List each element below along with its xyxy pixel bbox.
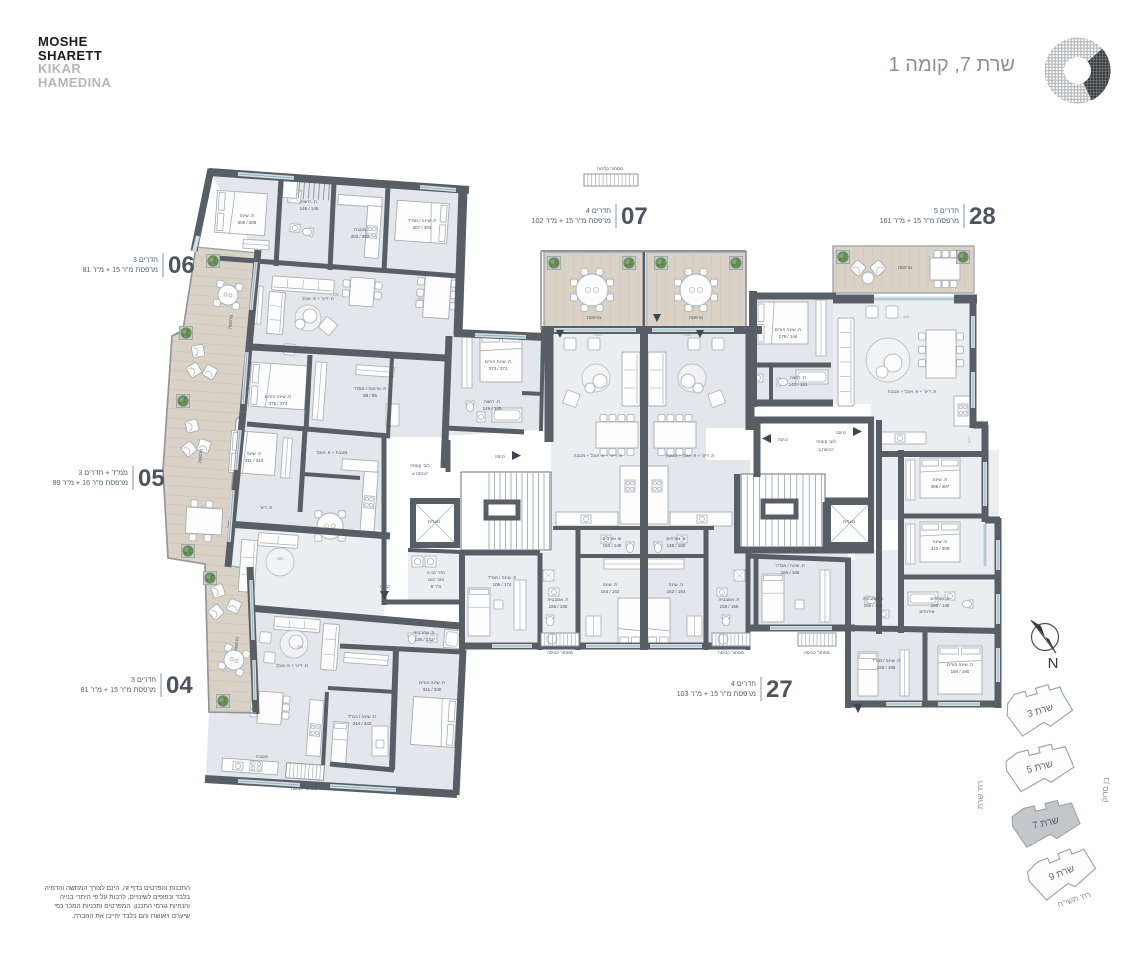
- svg-text:ת. שינה: ת. שינה: [933, 539, 948, 544]
- svg-text:ת. שינה / במ"ד: ת. שינה / במ"ד: [348, 714, 376, 719]
- svg-text:רח' שרת: רח' שרת: [976, 781, 985, 809]
- svg-text:רח' תשי"ח: רח' תשי"ח: [1056, 890, 1092, 909]
- svg-text:כניסה: כניסה: [836, 430, 846, 435]
- svg-text:כניסה: כניסה: [778, 437, 788, 442]
- svg-text:ת. שינה: ת. שינה: [669, 582, 684, 587]
- svg-text:81 ‎מ"ר ‎+ ‎15 ‎מ"ר ‎מרפסת: 81 ‎מ"ר ‎+ ‎15 ‎מ"ר ‎מרפסת: [83, 265, 158, 274]
- svg-text:ת. אמבטיה: ת. אמבטיה: [862, 596, 883, 601]
- svg-text:- 444 -: - 444 -: [901, 315, 913, 319]
- svg-text:מסתור כביסה: מסתור כביסה: [804, 650, 830, 655]
- svg-text:27: 27: [766, 676, 793, 703]
- svg-text:4 ‎חדרים: 4 ‎חדרים: [586, 206, 611, 215]
- svg-text:- 420 -: - 420 -: [294, 645, 306, 650]
- svg-text:- 345 -: - 345 -: [414, 297, 426, 302]
- svg-text:06: 06: [168, 252, 195, 279]
- svg-text:ת. דיור + פ. אוכל + מטבח: ת. דיור + פ. אוכל + מטבח: [666, 453, 715, 458]
- svg-text:ש. אורחים: ש. אורחים: [602, 536, 622, 541]
- svg-text:מעלית: מעלית: [428, 519, 440, 524]
- svg-text:ת. דיור + פ. אוכל + מטבח: ת. דיור + פ. אוכל + מטבח: [574, 453, 623, 458]
- svg-text:כניסה: כניסה: [380, 584, 390, 589]
- svg-text:מעלית: מעלית: [843, 519, 855, 524]
- svg-text:מטבח: מטבח: [256, 754, 268, 759]
- svg-text:ת. שינה: ת. שינה: [603, 582, 618, 587]
- svg-text:158 / 155: 158 / 155: [720, 604, 739, 609]
- svg-text:3 ‎חדרים: 3 ‎חדרים: [131, 675, 156, 684]
- svg-text:מסתור כביסה: מסתור כביסה: [291, 786, 317, 791]
- svg-text:ש. אורחים: ש. אורחים: [666, 536, 686, 541]
- svg-text:341 / 340: 341 / 340: [423, 687, 442, 692]
- svg-text:155 / 158: 155 / 158: [549, 604, 568, 609]
- svg-text:מטבח + פ. אוכל: מטבח + פ. אוכל: [317, 450, 348, 455]
- svg-text:כניסה א': כניסה א': [412, 471, 428, 476]
- svg-text:N: N: [1048, 655, 1059, 672]
- svg-text:28: 28: [969, 203, 996, 230]
- svg-text:כניסה ב': כניסה ב': [818, 447, 834, 452]
- svg-text:5 ‎חדרים: 5 ‎חדרים: [934, 206, 959, 215]
- svg-text:306 / 305: 306 / 305: [238, 220, 257, 225]
- svg-text:מטבח: מטבח: [354, 227, 366, 232]
- svg-text:ת. שינה / ממ"ד: ת. שינה / ממ"ד: [408, 218, 437, 223]
- svg-text:ת. שינה הורים: ת. שינה הורים: [419, 680, 445, 685]
- svg-text:ת. אמבטיה: ת. אמבטיה: [413, 630, 434, 635]
- svg-text:- 170 -: - 170 -: [967, 435, 971, 447]
- svg-text:4 ‎חדרים: 4 ‎חדרים: [731, 679, 756, 688]
- svg-text:שירותים: שירותים: [919, 609, 935, 614]
- svg-text:159 / 166: 159 / 166: [781, 570, 800, 575]
- svg-text:3 ‎חדרים: 3 ‎חדרים: [133, 255, 158, 264]
- svg-text:ת. שינה הורים: ת. שינה הורים: [775, 327, 801, 332]
- svg-text:375 / 374: 375 / 374: [269, 401, 288, 406]
- svg-text:ת. שינה: ת. שינה: [933, 477, 948, 482]
- svg-text:- 430 -: - 430 -: [593, 333, 605, 337]
- svg-text:149 / 145: 149 / 145: [483, 406, 502, 411]
- svg-text:ת. שינה הורים: ת. שינה הורים: [265, 394, 291, 399]
- svg-text:לובי קומתי: לובי קומתי: [816, 439, 836, 444]
- svg-text:150 / 148: 150 / 148: [603, 543, 622, 548]
- svg-text:89 ‎מ"ר ‎+ ‎16 ‎מ"ר ‎מרפסת: 89 ‎מ"ר ‎+ ‎16 ‎מ"ר ‎מרפסת: [53, 478, 128, 487]
- svg-text:- 380 -: - 380 -: [274, 557, 286, 562]
- svg-text:חדר כב-ה: חדר כב-ה: [427, 570, 446, 575]
- svg-text:בן סרוק: בן סרוק: [1100, 777, 1111, 803]
- svg-text:303 / 302: 303 / 302: [351, 234, 370, 239]
- svg-text:אזור כננו: אזור כננו: [428, 577, 444, 582]
- svg-text:מרפסת: מרפסת: [898, 265, 912, 270]
- svg-text:307 / 304: 307 / 304: [413, 225, 432, 230]
- svg-text:ת. ארונות / מסדר: ת. ארונות / מסדר: [354, 386, 387, 391]
- svg-text:07: 07: [621, 203, 648, 230]
- svg-text:ת. רחצה: ת. רחצה: [790, 375, 806, 380]
- svg-text:179 / 144: 179 / 144: [779, 334, 798, 339]
- svg-text:מרפסת: מרפסת: [587, 315, 601, 320]
- svg-text:ת. שינה הורים: ת. שינה הורים: [947, 662, 973, 667]
- svg-text:ת. רחצה: ת. רחצה: [301, 199, 317, 204]
- svg-text:103 ‎מ"ר ‎+ ‎15 ‎מ"ר ‎מרפסת: 103 ‎מ"ר ‎+ ‎15 ‎מ"ר ‎מרפסת: [677, 689, 756, 698]
- svg-text:ת. אמבטיה: ת. אמבטיה: [547, 597, 568, 602]
- svg-text:- 430 -: - 430 -: [683, 333, 695, 337]
- svg-text:ת. שינה / ממ"ד: ת. שינה / ממ"ד: [872, 658, 901, 663]
- svg-text:146 / 145: 146 / 145: [300, 206, 319, 211]
- svg-text:9 מ"ר: 9 מ"ר: [431, 584, 442, 589]
- svg-text:344 / 342: 344 / 342: [353, 721, 372, 726]
- svg-text:ת. שינה / ממ"ד: ת. שינה / ממ"ד: [488, 575, 517, 580]
- svg-text:3 ‎חדרים ‎+ ‎ממ"ד: 3 ‎חדרים ‎+ ‎ממ"ד: [78, 468, 128, 477]
- svg-text:ת. דיור + פ. אוכל + מטבח: ת. דיור + פ. אוכל + מטבח: [888, 389, 937, 394]
- svg-text:136 / 133: 136 / 133: [415, 637, 434, 642]
- svg-text:106 / 174: 106 / 174: [493, 582, 512, 587]
- svg-text:81 ‎מ"ר ‎+ ‎15 ‎מ"ר ‎מרפסת: 81 ‎מ"ר ‎+ ‎15 ‎מ"ר ‎מרפסת: [81, 685, 156, 694]
- svg-text:102 ‎מ"ר ‎+ ‎15 ‎מ"ר ‎מרפסת: 102 ‎מ"ר ‎+ ‎15 ‎מ"ר ‎מרפסת: [532, 216, 611, 225]
- svg-text:ת. שינה: ת. שינה: [247, 451, 262, 456]
- svg-text:מרפסת: מרפסת: [689, 315, 703, 320]
- svg-text:מסתור קליטה: מסתור קליטה: [597, 166, 623, 171]
- svg-text:148 / 150: 148 / 150: [667, 543, 686, 548]
- svg-text:- 490 -: - 490 -: [330, 293, 342, 298]
- svg-text:ת. אמבטיה: ת. אמבטיה: [718, 597, 739, 602]
- svg-text:373 / 371: 373 / 371: [489, 366, 508, 371]
- svg-text:194 / 190: 194 / 190: [951, 669, 970, 674]
- svg-text:310 / 309: 310 / 309: [931, 546, 950, 551]
- svg-text:140 / 141: 140 / 141: [789, 382, 808, 387]
- svg-text:ש. אורחים: ש. אורחים: [930, 596, 950, 601]
- svg-text:311 / 310: 311 / 310: [245, 458, 264, 463]
- svg-text:162 / 164: 162 / 164: [667, 589, 686, 594]
- svg-text:04: 04: [166, 672, 193, 699]
- svg-text:155 / 150: 155 / 150: [864, 603, 883, 608]
- svg-text:ת. שינה הורים: ת. שינה הורים: [485, 359, 511, 364]
- svg-text:ת. שינה / מגדיר: ת. שינה / מגדיר: [775, 563, 804, 568]
- svg-text:88 / 85: 88 / 85: [363, 393, 377, 398]
- svg-text:308 / 307: 308 / 307: [931, 484, 950, 489]
- svg-text:150 / 148: 150 / 148: [931, 603, 950, 608]
- svg-text:לובי קומתי: לובי קומתי: [410, 463, 430, 468]
- svg-text:161 ‎מ"ר ‎+ ‎15 ‎מ"ר ‎מרפסת: 161 ‎מ"ר ‎+ ‎15 ‎מ"ר ‎מרפסת: [880, 216, 959, 225]
- svg-text:ת. רחצה: ת. רחצה: [484, 399, 500, 404]
- svg-text:ת. דיור + פ. אוכל: ת. דיור + פ. אוכל: [302, 296, 334, 301]
- svg-text:ת. שינה: ת. שינה: [240, 213, 255, 218]
- svg-text:165 / 168: 165 / 168: [877, 665, 896, 670]
- svg-text:164 / 162: 164 / 162: [601, 589, 620, 594]
- svg-text:05: 05: [138, 465, 165, 492]
- svg-text:ת. דיור: ת. דיור: [260, 505, 273, 510]
- svg-text:מסתור כביסה: מסתור כביסה: [718, 650, 744, 655]
- svg-text:מסתור כביסה: מסתור כביסה: [547, 650, 573, 655]
- svg-text:ת. דיור + פ. אוכל: ת. דיור + פ. אוכל: [276, 663, 308, 668]
- svg-text:כניסה: כניסה: [495, 454, 505, 459]
